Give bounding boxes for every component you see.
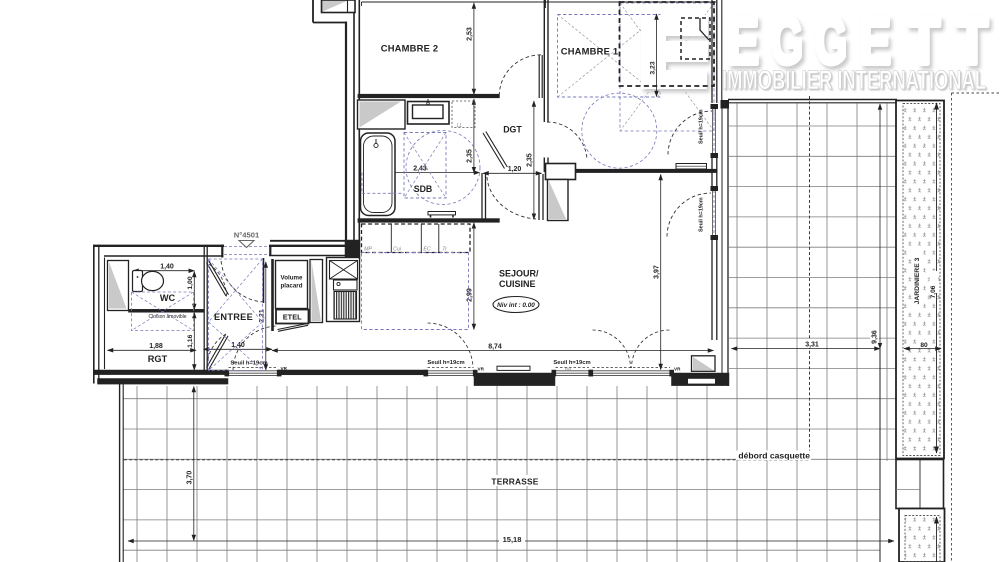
svg-text:Seuil h=19cm: Seuil h=19cm xyxy=(698,109,704,144)
svg-text:TERRASSE: TERRASSE xyxy=(491,477,538,487)
svg-text:Seuil h=19cm: Seuil h=19cm xyxy=(698,197,704,232)
svg-text:CHAMBRE 2: CHAMBRE 2 xyxy=(381,43,439,54)
svg-text:JARDINIERE 3: JARDINIERE 3 xyxy=(914,257,921,304)
svg-text:N°4501: N°4501 xyxy=(234,231,260,240)
svg-text:3,23: 3,23 xyxy=(649,61,656,74)
svg-text:Tr: Tr xyxy=(442,247,447,253)
svg-text:CHAMBRE 1: CHAMBRE 1 xyxy=(561,46,619,57)
svg-text:2,43: 2,43 xyxy=(413,165,427,172)
svg-text:ETEL: ETEL xyxy=(283,313,302,322)
svg-text:RGT: RGT xyxy=(148,354,168,364)
svg-text:8,74: 8,74 xyxy=(488,343,502,350)
svg-text:EC: EC xyxy=(423,247,430,253)
svg-text:15,18: 15,18 xyxy=(503,535,522,544)
svg-text:LL: LL xyxy=(457,123,463,129)
svg-text:1,40: 1,40 xyxy=(160,264,174,271)
svg-text:Volume: Volume xyxy=(281,275,303,282)
svg-text:ENTREE: ENTREE xyxy=(214,312,253,322)
svg-text:Niv int : 0.00: Niv int : 0.00 xyxy=(497,302,535,309)
svg-text:1,20: 1,20 xyxy=(508,166,522,173)
svg-text:WC: WC xyxy=(160,293,176,303)
svg-text:MP: MP xyxy=(364,247,372,253)
svg-text:9,36: 9,36 xyxy=(872,330,879,344)
svg-text:3,97: 3,97 xyxy=(654,265,661,279)
svg-text:VR: VR xyxy=(478,367,485,372)
svg-text:DGT: DGT xyxy=(503,125,522,135)
svg-text:IMMOBILIER INTERNATIONAL: IMMOBILIER INTERNATIONAL xyxy=(722,65,986,95)
svg-text:placard: placard xyxy=(280,283,302,290)
svg-text:VR: VR xyxy=(281,366,288,371)
svg-text:VR: VR xyxy=(674,367,681,372)
svg-text:3,31: 3,31 xyxy=(805,342,819,349)
svg-text:Cloison amovible: Cloison amovible xyxy=(148,314,186,320)
svg-text:1,00: 1,00 xyxy=(187,276,194,289)
svg-text:3,70: 3,70 xyxy=(187,471,194,485)
svg-text:Seuil h=19cm: Seuil h=19cm xyxy=(427,360,464,366)
svg-text:débord casquette: débord casquette xyxy=(738,450,810,460)
svg-text:1,88: 1,88 xyxy=(149,343,163,350)
svg-text:SDB: SDB xyxy=(414,184,433,194)
svg-text:1,16: 1,16 xyxy=(187,334,194,347)
svg-text:SEJOUR/: SEJOUR/ xyxy=(499,269,539,279)
svg-text:7,06: 7,06 xyxy=(930,285,937,298)
svg-text:80: 80 xyxy=(920,342,928,349)
svg-text:2,53: 2,53 xyxy=(467,27,474,41)
svg-text:2,35: 2,35 xyxy=(467,149,474,163)
svg-text:Iso: Iso xyxy=(565,366,572,371)
svg-text:Cui: Cui xyxy=(393,247,402,253)
svg-text:Seuil h=19cm: Seuil h=19cm xyxy=(553,360,590,366)
svg-text:Seuil h=19cm: Seuil h=19cm xyxy=(230,361,267,367)
svg-text:CUISINE: CUISINE xyxy=(499,279,536,289)
svg-text:2,99: 2,99 xyxy=(467,288,474,302)
svg-text:2,35: 2,35 xyxy=(527,153,534,167)
